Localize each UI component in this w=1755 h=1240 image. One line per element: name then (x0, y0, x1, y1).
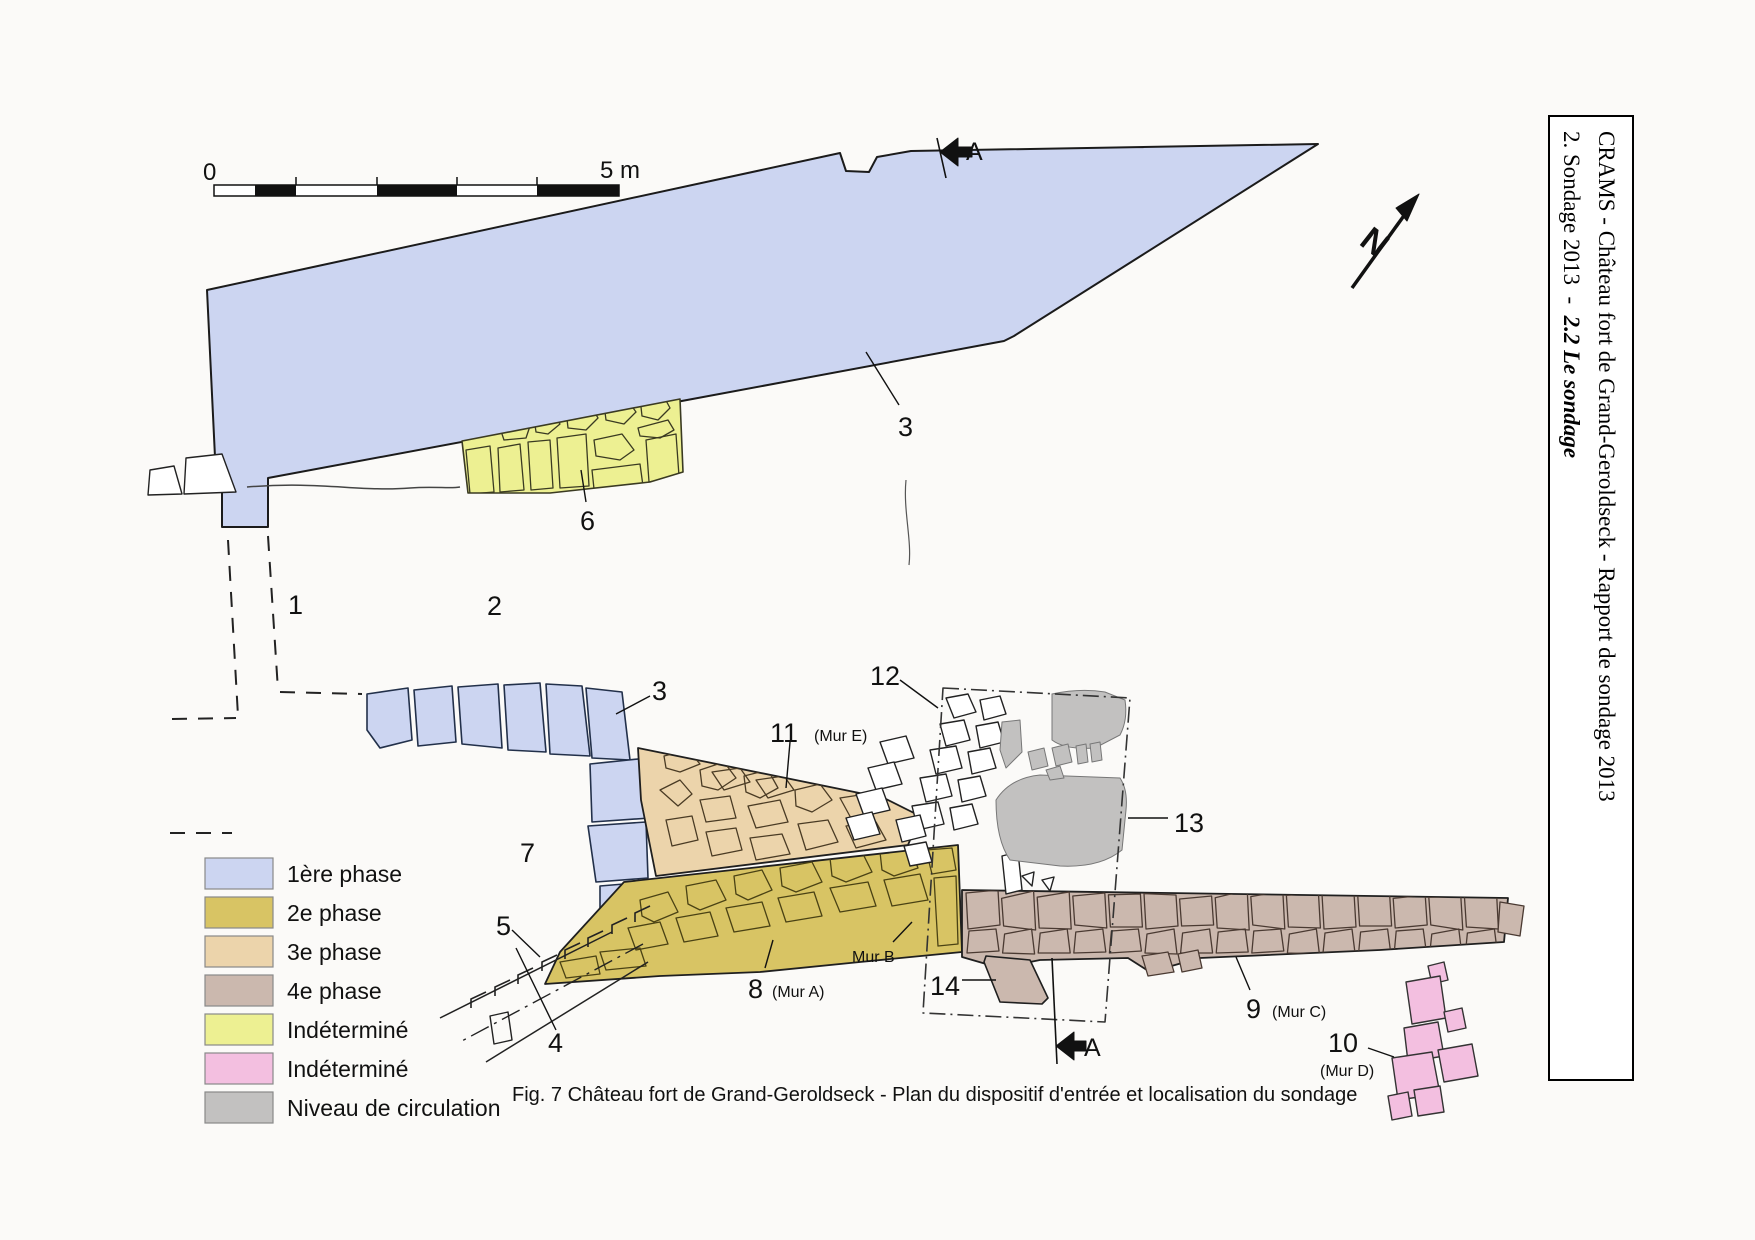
detached-stone (148, 466, 182, 495)
sondage-white-stone (958, 776, 986, 802)
report-section-prefix: 2. Sondage 2013 - (1559, 131, 1584, 316)
scale-bar: 0 5 m (203, 157, 640, 196)
stone-1ere-phase (546, 684, 590, 756)
label-leader-line (900, 680, 938, 708)
label-feature-10: 10 (1328, 1028, 1358, 1058)
stone-4e-phase (1142, 952, 1174, 976)
legend-label-indetermine-jaune: Indéterminé (287, 1017, 408, 1043)
label-feature-14: 14 (930, 971, 960, 1001)
legend-label-3e-phase: 3e phase (287, 939, 382, 965)
report-margin-header: CRAMS - Château fort de Grand-Geroldseck… (1548, 115, 1634, 1081)
step-mark (471, 992, 486, 1008)
sondage-white-stone (980, 696, 1006, 720)
section-marker-a-bottom-label: A (1084, 1034, 1101, 1062)
label-feature-11: 11 (770, 718, 798, 748)
wall-face-line (247, 485, 460, 489)
stone-1ere-phase (588, 822, 648, 882)
legend-label-2e-phase: 2e phase (287, 900, 382, 926)
stone-indetermine-rose-mur-d (1414, 1086, 1444, 1116)
sondage-white-stone (946, 694, 976, 718)
label-mur-c: (Mur C) (1272, 1004, 1326, 1021)
label-feature-8: 8 (748, 974, 763, 1004)
scale-bar-segment (255, 185, 296, 196)
figure-caption: Fig. 7 Château fort de Grand-Geroldseck … (512, 1084, 1357, 1106)
path-stone (490, 1012, 512, 1044)
plan-art-layer (148, 138, 1524, 1120)
gray-stone (1052, 744, 1072, 766)
stone-4e-phase (1498, 902, 1524, 936)
gray-stone (1090, 742, 1102, 762)
gray-circulation-level-upper (1052, 690, 1126, 748)
sondage-white-stone (868, 762, 902, 790)
legend-label-niveau-circulation: Niveau de circulation (287, 1095, 501, 1121)
gray-stone (1046, 766, 1064, 780)
stone-1ere-phase (414, 686, 456, 746)
scale-bar-segment (537, 185, 619, 196)
stone-indetermine-rose-mur-d (1388, 1092, 1412, 1120)
dashed-limit-line (228, 540, 238, 716)
legend-swatch-3e-phase (205, 936, 273, 967)
legend-swatch-indetermine-rose (205, 1053, 273, 1084)
label-feature-1: 1 (288, 590, 303, 620)
label-feature-3-upper: 3 (898, 412, 913, 442)
label-feature-13: 13 (1174, 808, 1204, 838)
scale-bar-segment (377, 185, 457, 196)
label-leader-line (516, 948, 556, 1030)
stone-1ere-phase (458, 684, 502, 748)
legend-swatch-4e-phase (205, 975, 273, 1006)
label-mur-a: (Mur A) (772, 984, 824, 1001)
label-feature-9: 9 (1246, 994, 1261, 1024)
legend: 1ère phase 2e phase 3e phase 4e phase In… (205, 858, 501, 1123)
label-mur-e: (Mur E) (814, 728, 867, 745)
north-arrow-letter: N (1353, 220, 1396, 265)
label-feature-7: 7 (520, 838, 535, 868)
gray-stone (1076, 744, 1088, 764)
report-figure-page: { "sidebar": { "line1": "CRAMS - Château… (0, 0, 1755, 1240)
dashed-limit-line (280, 692, 362, 694)
label-leader-line (1236, 957, 1250, 990)
sondage-white-stone (904, 842, 932, 866)
stone-4e-phase (1178, 950, 1202, 972)
stone-indetermine-rose-mur-d (1406, 976, 1446, 1024)
step-mark (495, 980, 510, 996)
report-section-emphasis: 2.2 Le sondage (1559, 316, 1584, 458)
report-title-rotated: CRAMS - Château fort de Grand-Geroldseck… (1589, 131, 1624, 1069)
site-plan: 0 5 m N 1 2 3 3 4 5 6 7 8 (Mur A) 9 (Mur… (0, 0, 1755, 1240)
stone-indetermine-rose-mur-d (1444, 1008, 1466, 1032)
section-marker-a-top-label: A (966, 138, 983, 166)
scale-bar-ticks (296, 177, 537, 185)
scale-five-label: 5 m (600, 157, 640, 184)
legend-label-indetermine-rose: Indéterminé (287, 1056, 408, 1082)
label-feature-2: 2 (487, 591, 502, 621)
dashed-limit-line (268, 536, 278, 690)
legend-swatch-indetermine-jaune (205, 1014, 273, 1045)
sondage-white-stone (950, 804, 978, 830)
stone-1ere-phase (504, 683, 546, 752)
sondage-white-stone (880, 736, 914, 764)
label-feature-6: 6 (580, 506, 595, 536)
sondage-white-stone (940, 720, 970, 746)
gray-circulation-level-large (996, 775, 1126, 866)
label-leader-line (512, 930, 540, 957)
stone-1ere-phase (367, 688, 412, 748)
section-arrow-bottom-icon (1056, 1032, 1086, 1060)
scale-zero-label: 0 (203, 159, 216, 186)
sondage-white-stone (930, 746, 962, 774)
gray-stone (1028, 748, 1048, 770)
legend-swatch-1ere-phase (205, 858, 273, 889)
sondage-white-stone (1022, 872, 1034, 886)
gray-stone (1000, 720, 1022, 768)
legend-swatch-2e-phase (205, 897, 273, 928)
legend-label-1ere-phase: 1ère phase (287, 861, 402, 887)
stone-1ere-phase (586, 688, 630, 760)
sondage-white-stone (896, 815, 926, 842)
sondage-white-stone (1042, 877, 1054, 891)
label-feature-5: 5 (496, 911, 511, 941)
dashed-limit-line (172, 718, 236, 719)
report-section-rotated: 2. Sondage 2013 - 2.2 Le sondage (1554, 131, 1589, 1069)
section-line-bottom (1052, 958, 1057, 1064)
label-feature-12: 12 (870, 661, 900, 691)
label-feature-3-lower: 3 (652, 676, 667, 706)
stone-indetermine-rose-mur-d (1438, 1044, 1478, 1082)
terrain-line (905, 480, 909, 565)
legend-label-4e-phase: 4e phase (287, 978, 382, 1004)
label-leader-line (1368, 1048, 1394, 1057)
north-arrow-head-icon (1396, 194, 1419, 221)
label-mur-b: Mur B (852, 949, 895, 966)
label-feature-4: 4 (548, 1028, 563, 1058)
legend-swatch-niveau-circulation (205, 1092, 273, 1123)
sondage-white-stone (976, 722, 1004, 748)
sondage-white-stone (968, 748, 996, 774)
wall-1ere-phase-main (207, 144, 1318, 527)
label-mur-d: (Mur D) (1320, 1063, 1374, 1080)
